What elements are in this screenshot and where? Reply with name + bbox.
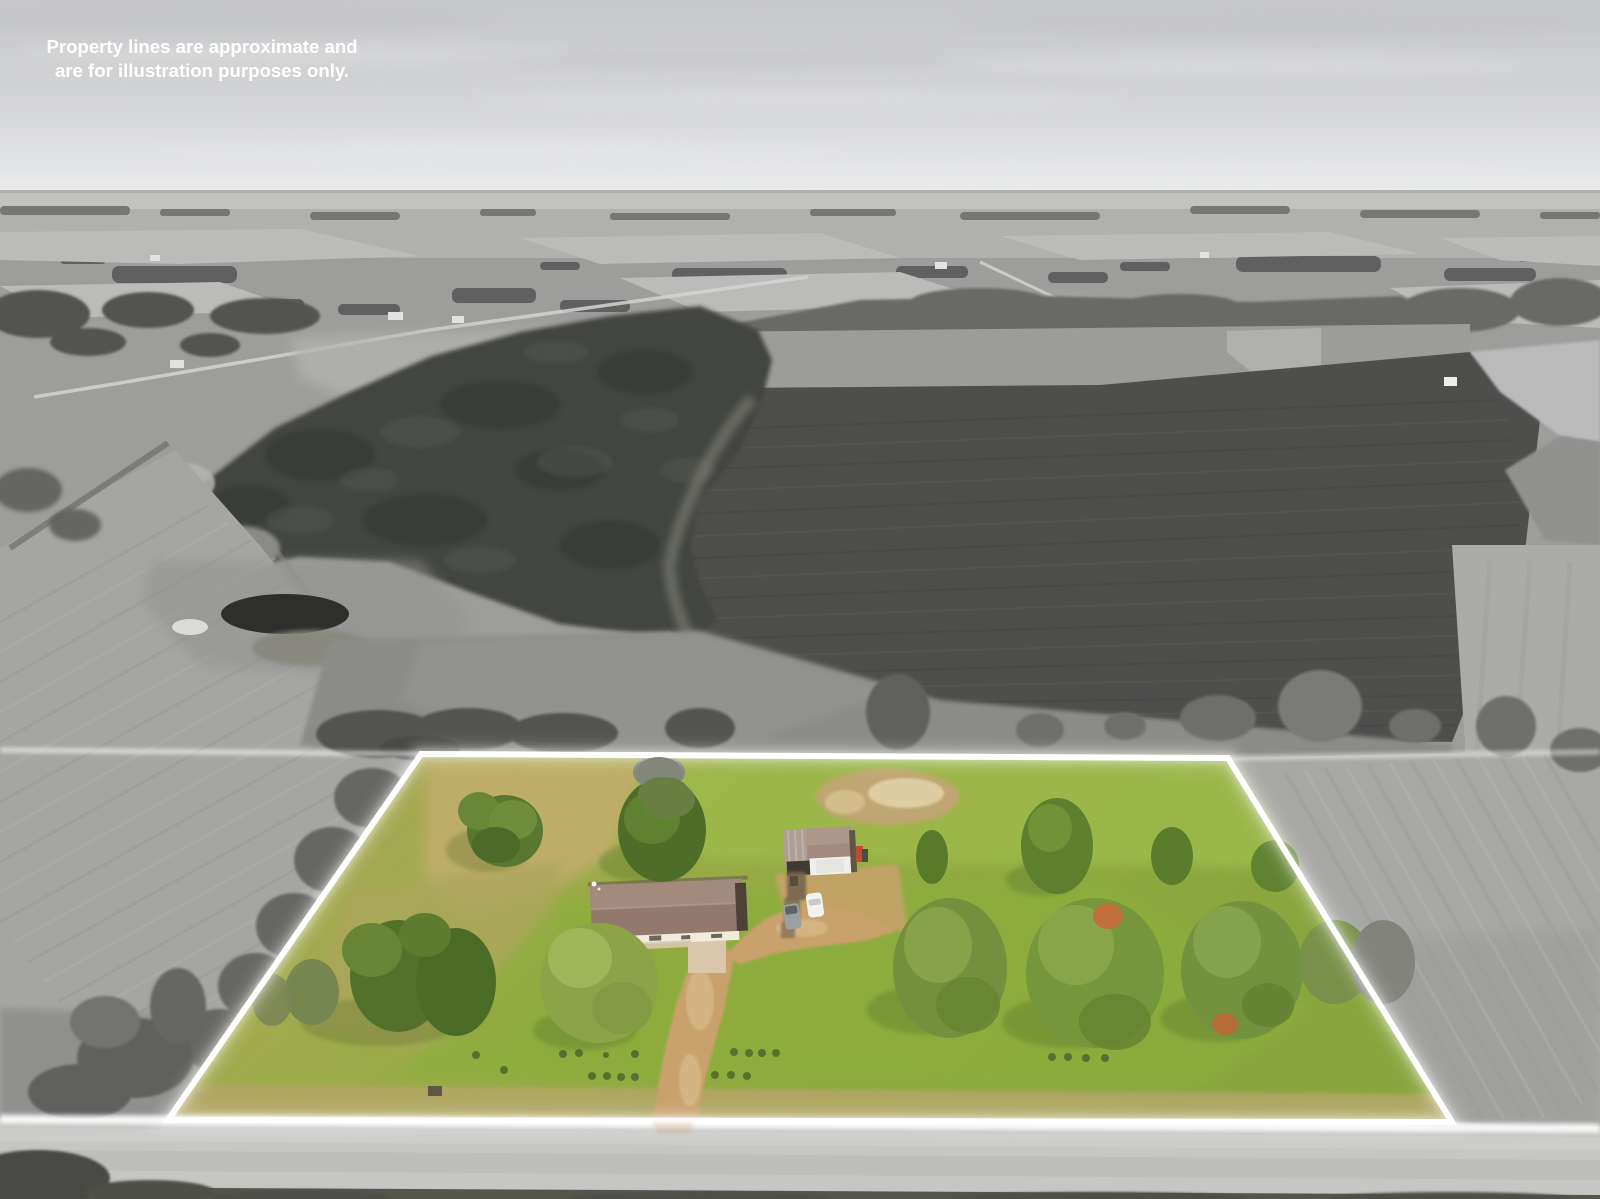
svg-text:Property lines are approximate: Property lines are approximate and: [46, 36, 357, 57]
svg-text:are for illustration purposes: are for illustration purposes only.: [55, 60, 349, 81]
